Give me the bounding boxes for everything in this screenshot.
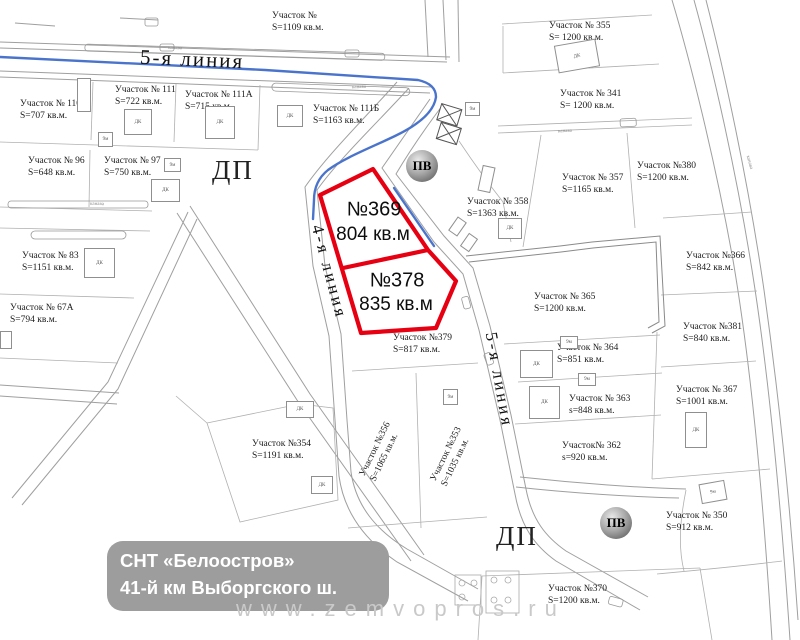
watermark-text: www.zemvopros.ru	[236, 596, 566, 622]
snt-sign-line1: СНТ «Белоостров»	[120, 548, 376, 575]
map-frame: Участок № 110S=707 кв.м.Участок № 111S=7…	[0, 0, 800, 640]
road-label-5th-line-top: 5-я линия	[140, 45, 245, 75]
road-annotation: канава	[90, 202, 104, 207]
highlight-plot-369-area: 804 кв.м	[336, 224, 410, 246]
highlight-plot-378-number: №378	[370, 270, 425, 293]
road-annotation: канава	[745, 155, 753, 170]
well-badge-pv-2: ПВ	[600, 507, 632, 539]
well-badge-pv-1: ПВ	[406, 150, 438, 182]
road-annotation: канава	[352, 85, 366, 90]
zone-label-dp-1: ДП	[212, 155, 254, 186]
highlight-plot-369-number: №369	[347, 199, 402, 222]
zone-label-dp-2: ДП	[496, 521, 538, 552]
road-annotation: канава	[558, 129, 572, 135]
highlight-plot-378-area: 835 кв.м	[359, 294, 433, 316]
